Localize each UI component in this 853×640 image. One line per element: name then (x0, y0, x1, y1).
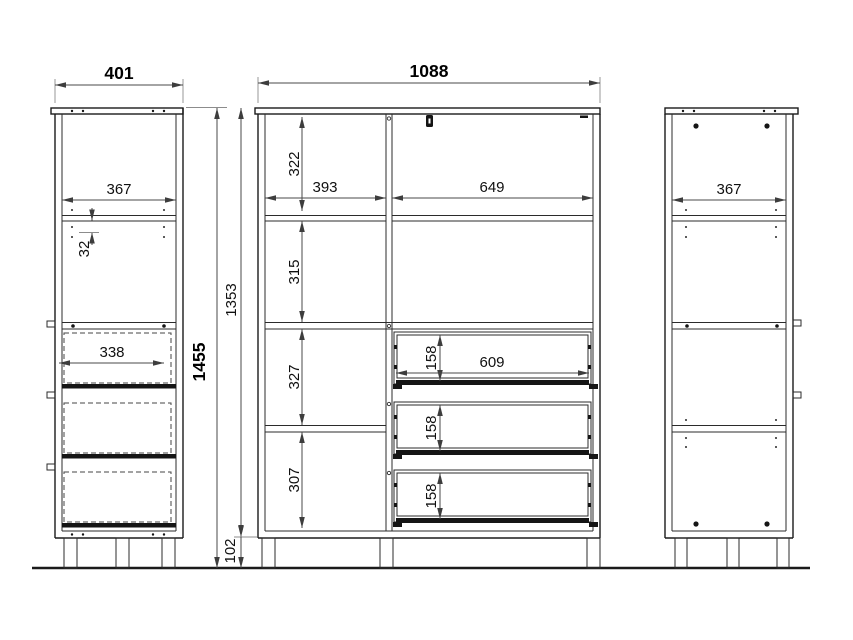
dim-label-609: 609 (479, 354, 504, 371)
dim-section-2: 315 (286, 221, 303, 322)
dim-leg-height: 102 (222, 523, 241, 568)
hidden-drawers (47, 333, 176, 528)
cam-lock-icon (426, 115, 433, 127)
shelves (265, 216, 593, 433)
dim-drawer-depth: 338 (59, 344, 164, 363)
dim-section-1: 322 (286, 117, 303, 211)
left-side-view: 401 367 32 338 1455 (47, 63, 227, 568)
dim-section-4: 307 (286, 432, 303, 528)
dim-label-1353: 1353 (223, 283, 240, 316)
legs (262, 538, 600, 568)
dim-right-inner-width: 367 (672, 181, 786, 200)
dim-label-649: 649 (479, 179, 504, 196)
dim-label-307: 307 (286, 467, 303, 492)
dim-label-158-1: 158 (423, 345, 440, 370)
dim-label-322: 322 (286, 151, 303, 176)
right-side-view: 367 (665, 108, 801, 568)
dim-right-opening: 649 (392, 179, 593, 198)
front-view: 1088 322 393 649 315 327 307 135 (222, 61, 600, 568)
dim-drawer-1-height: 158 (423, 335, 440, 381)
dim-label-102: 102 (222, 538, 239, 563)
dim-left-total-width: 401 (55, 63, 183, 103)
dim-front-total-width: 1088 (258, 61, 600, 103)
dim-left-inner-width: 367 (62, 181, 176, 200)
legs (64, 538, 175, 568)
dim-label-393: 393 (312, 179, 337, 196)
dim-label-327: 327 (286, 364, 303, 389)
dim-label-367-right: 367 (716, 181, 741, 198)
dim-total-height: 1455 (186, 108, 227, 569)
dim-label-1088: 1088 (410, 61, 449, 81)
lower-shelf (672, 419, 786, 448)
technical-drawing-canvas: 401 367 32 338 1455 (0, 0, 853, 640)
dim-label-158-2: 158 (423, 415, 440, 440)
dim-body-height: 1353 (223, 108, 257, 537)
dim-label-1455: 1455 (189, 342, 209, 381)
legs (675, 538, 789, 568)
furniture-dimension-drawing: 401 367 32 338 1455 (0, 0, 853, 640)
adjustable-shelf (672, 209, 786, 238)
dim-drawer-3-height: 158 (423, 473, 440, 519)
dim-label-401: 401 (104, 63, 133, 83)
adjustable-shelf (62, 209, 176, 238)
dim-label-32: 32 (76, 241, 93, 258)
dim-label-367-left: 367 (106, 181, 131, 198)
dim-left-opening: 393 (265, 179, 386, 198)
dim-label-338: 338 (99, 344, 124, 361)
dim-label-158-3: 158 (423, 483, 440, 508)
dim-drawer-2-height: 158 (423, 405, 440, 451)
fixed-shelf (47, 321, 176, 329)
fixed-shelf (672, 320, 801, 398)
dim-section-3: 327 (286, 329, 303, 425)
dim-label-315: 315 (286, 259, 303, 284)
